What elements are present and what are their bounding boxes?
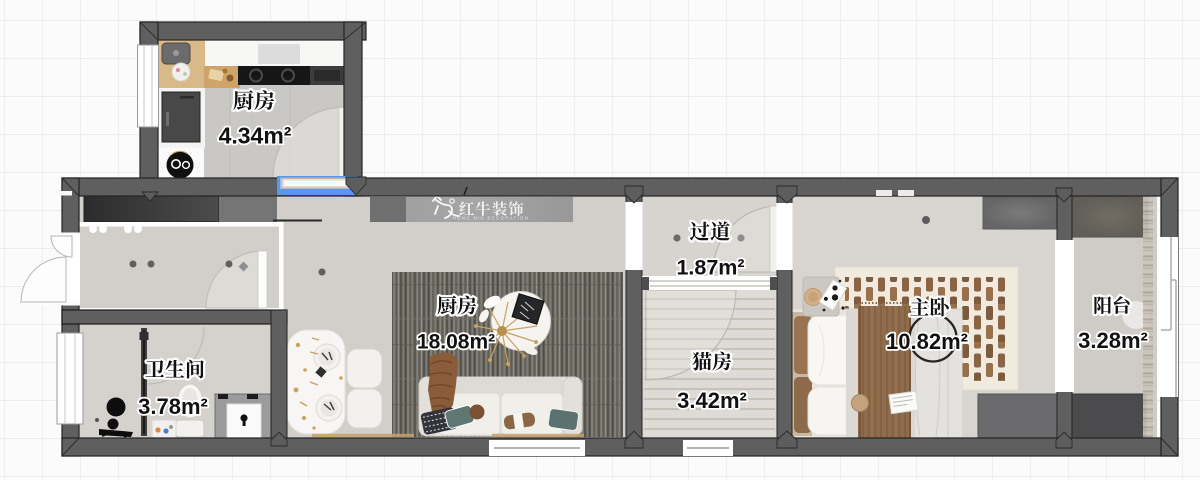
svg-text:1.87m²: 1.87m² xyxy=(676,256,744,280)
svg-text:4.34m²: 4.34m² xyxy=(219,122,292,148)
svg-text:HONG NIU DECORATION: HONG NIU DECORATION xyxy=(453,216,529,221)
svg-text:3.28m²: 3.28m² xyxy=(1078,328,1148,353)
svg-text:3.78m²: 3.78m² xyxy=(138,394,208,419)
svg-text:10.82m²: 10.82m² xyxy=(886,329,968,354)
svg-text:3.42m²: 3.42m² xyxy=(677,388,747,413)
svg-text:18.08m²: 18.08m² xyxy=(417,331,495,354)
